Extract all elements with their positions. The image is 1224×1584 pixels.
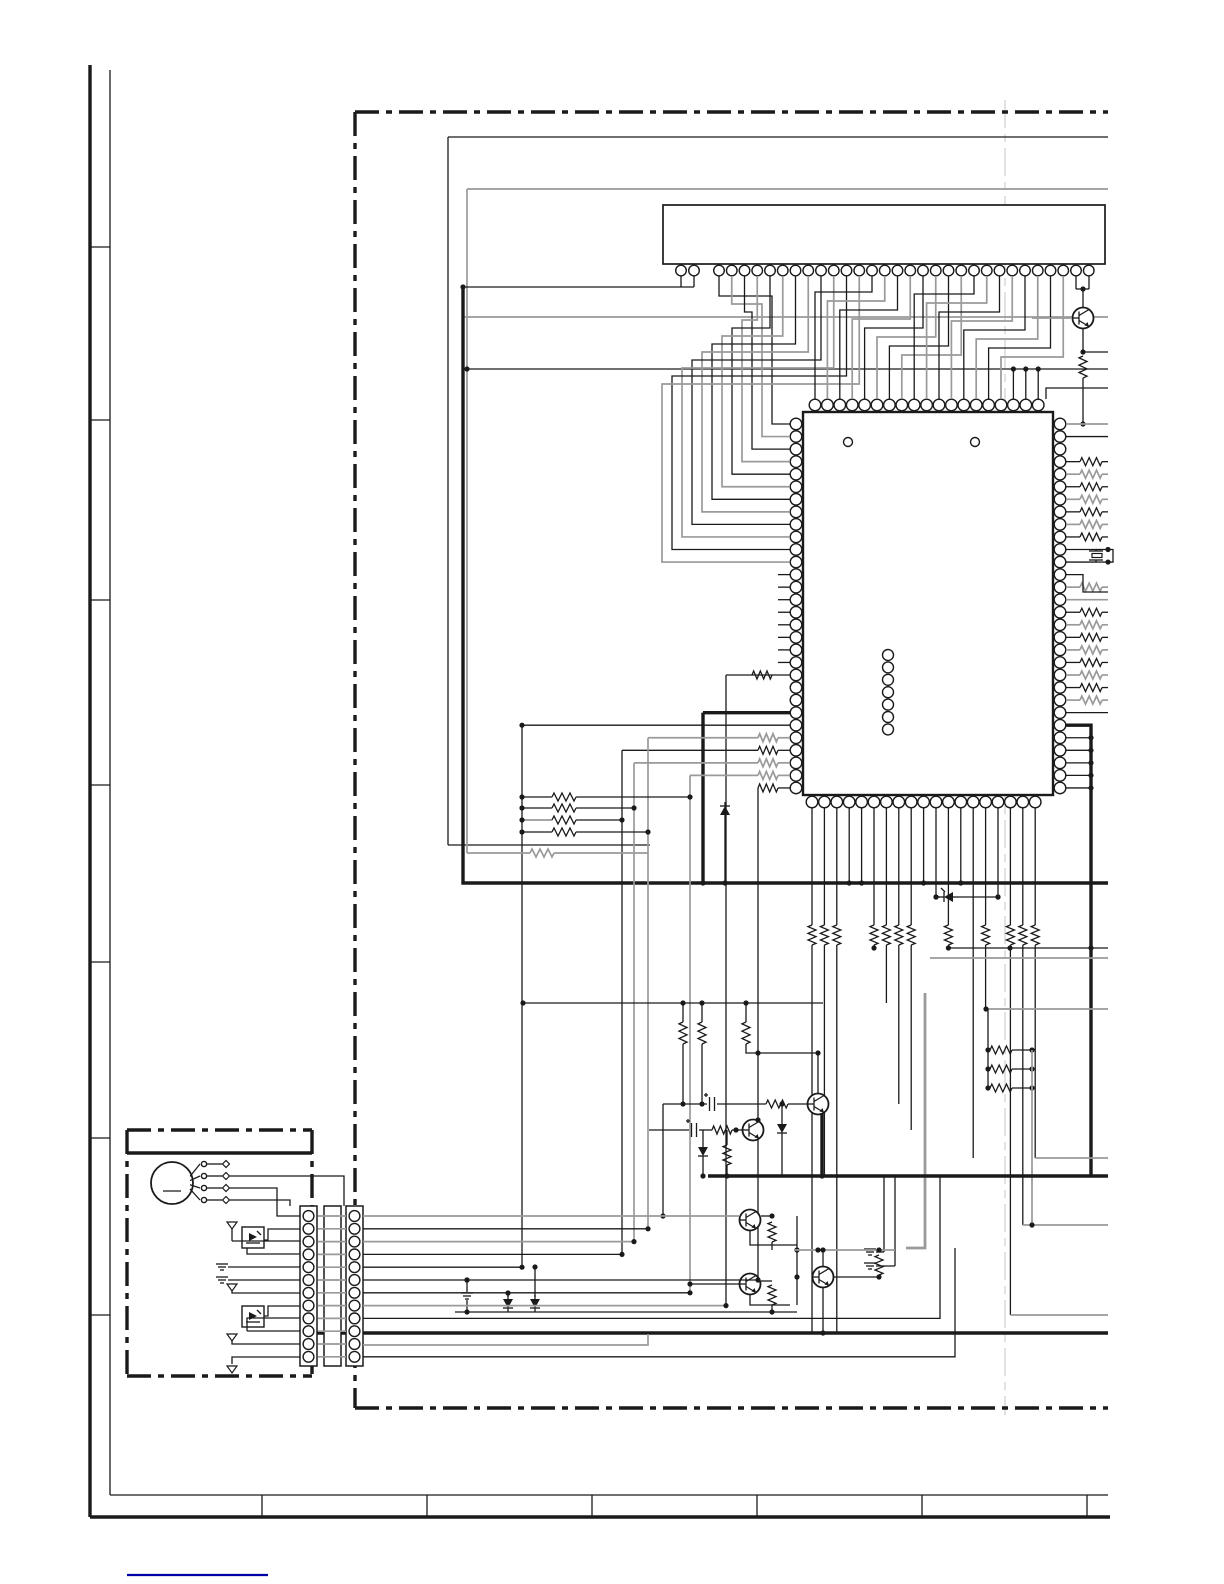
photo-interrupters <box>216 1222 264 1373</box>
motor-unit-boundary <box>127 1130 312 1376</box>
schematic-page: Left half of a printed circuit schematic… <box>0 0 1224 1584</box>
ic-left-wires <box>519 575 790 1306</box>
strip-b-wires <box>363 1177 955 1357</box>
schematic-canvas <box>0 0 1224 1584</box>
board-connector-strips <box>300 1206 363 1366</box>
ic-right-resistors <box>1066 424 1108 713</box>
module-wires <box>228 1229 300 1364</box>
ic-right-ladder <box>1066 725 1094 1176</box>
top-flat-connector <box>663 205 1105 287</box>
right-resistor-trio <box>864 993 1035 1269</box>
main-ic <box>790 399 1066 808</box>
crystal <box>1066 547 1113 565</box>
transistor-cluster-mid <box>649 1050 1108 1218</box>
